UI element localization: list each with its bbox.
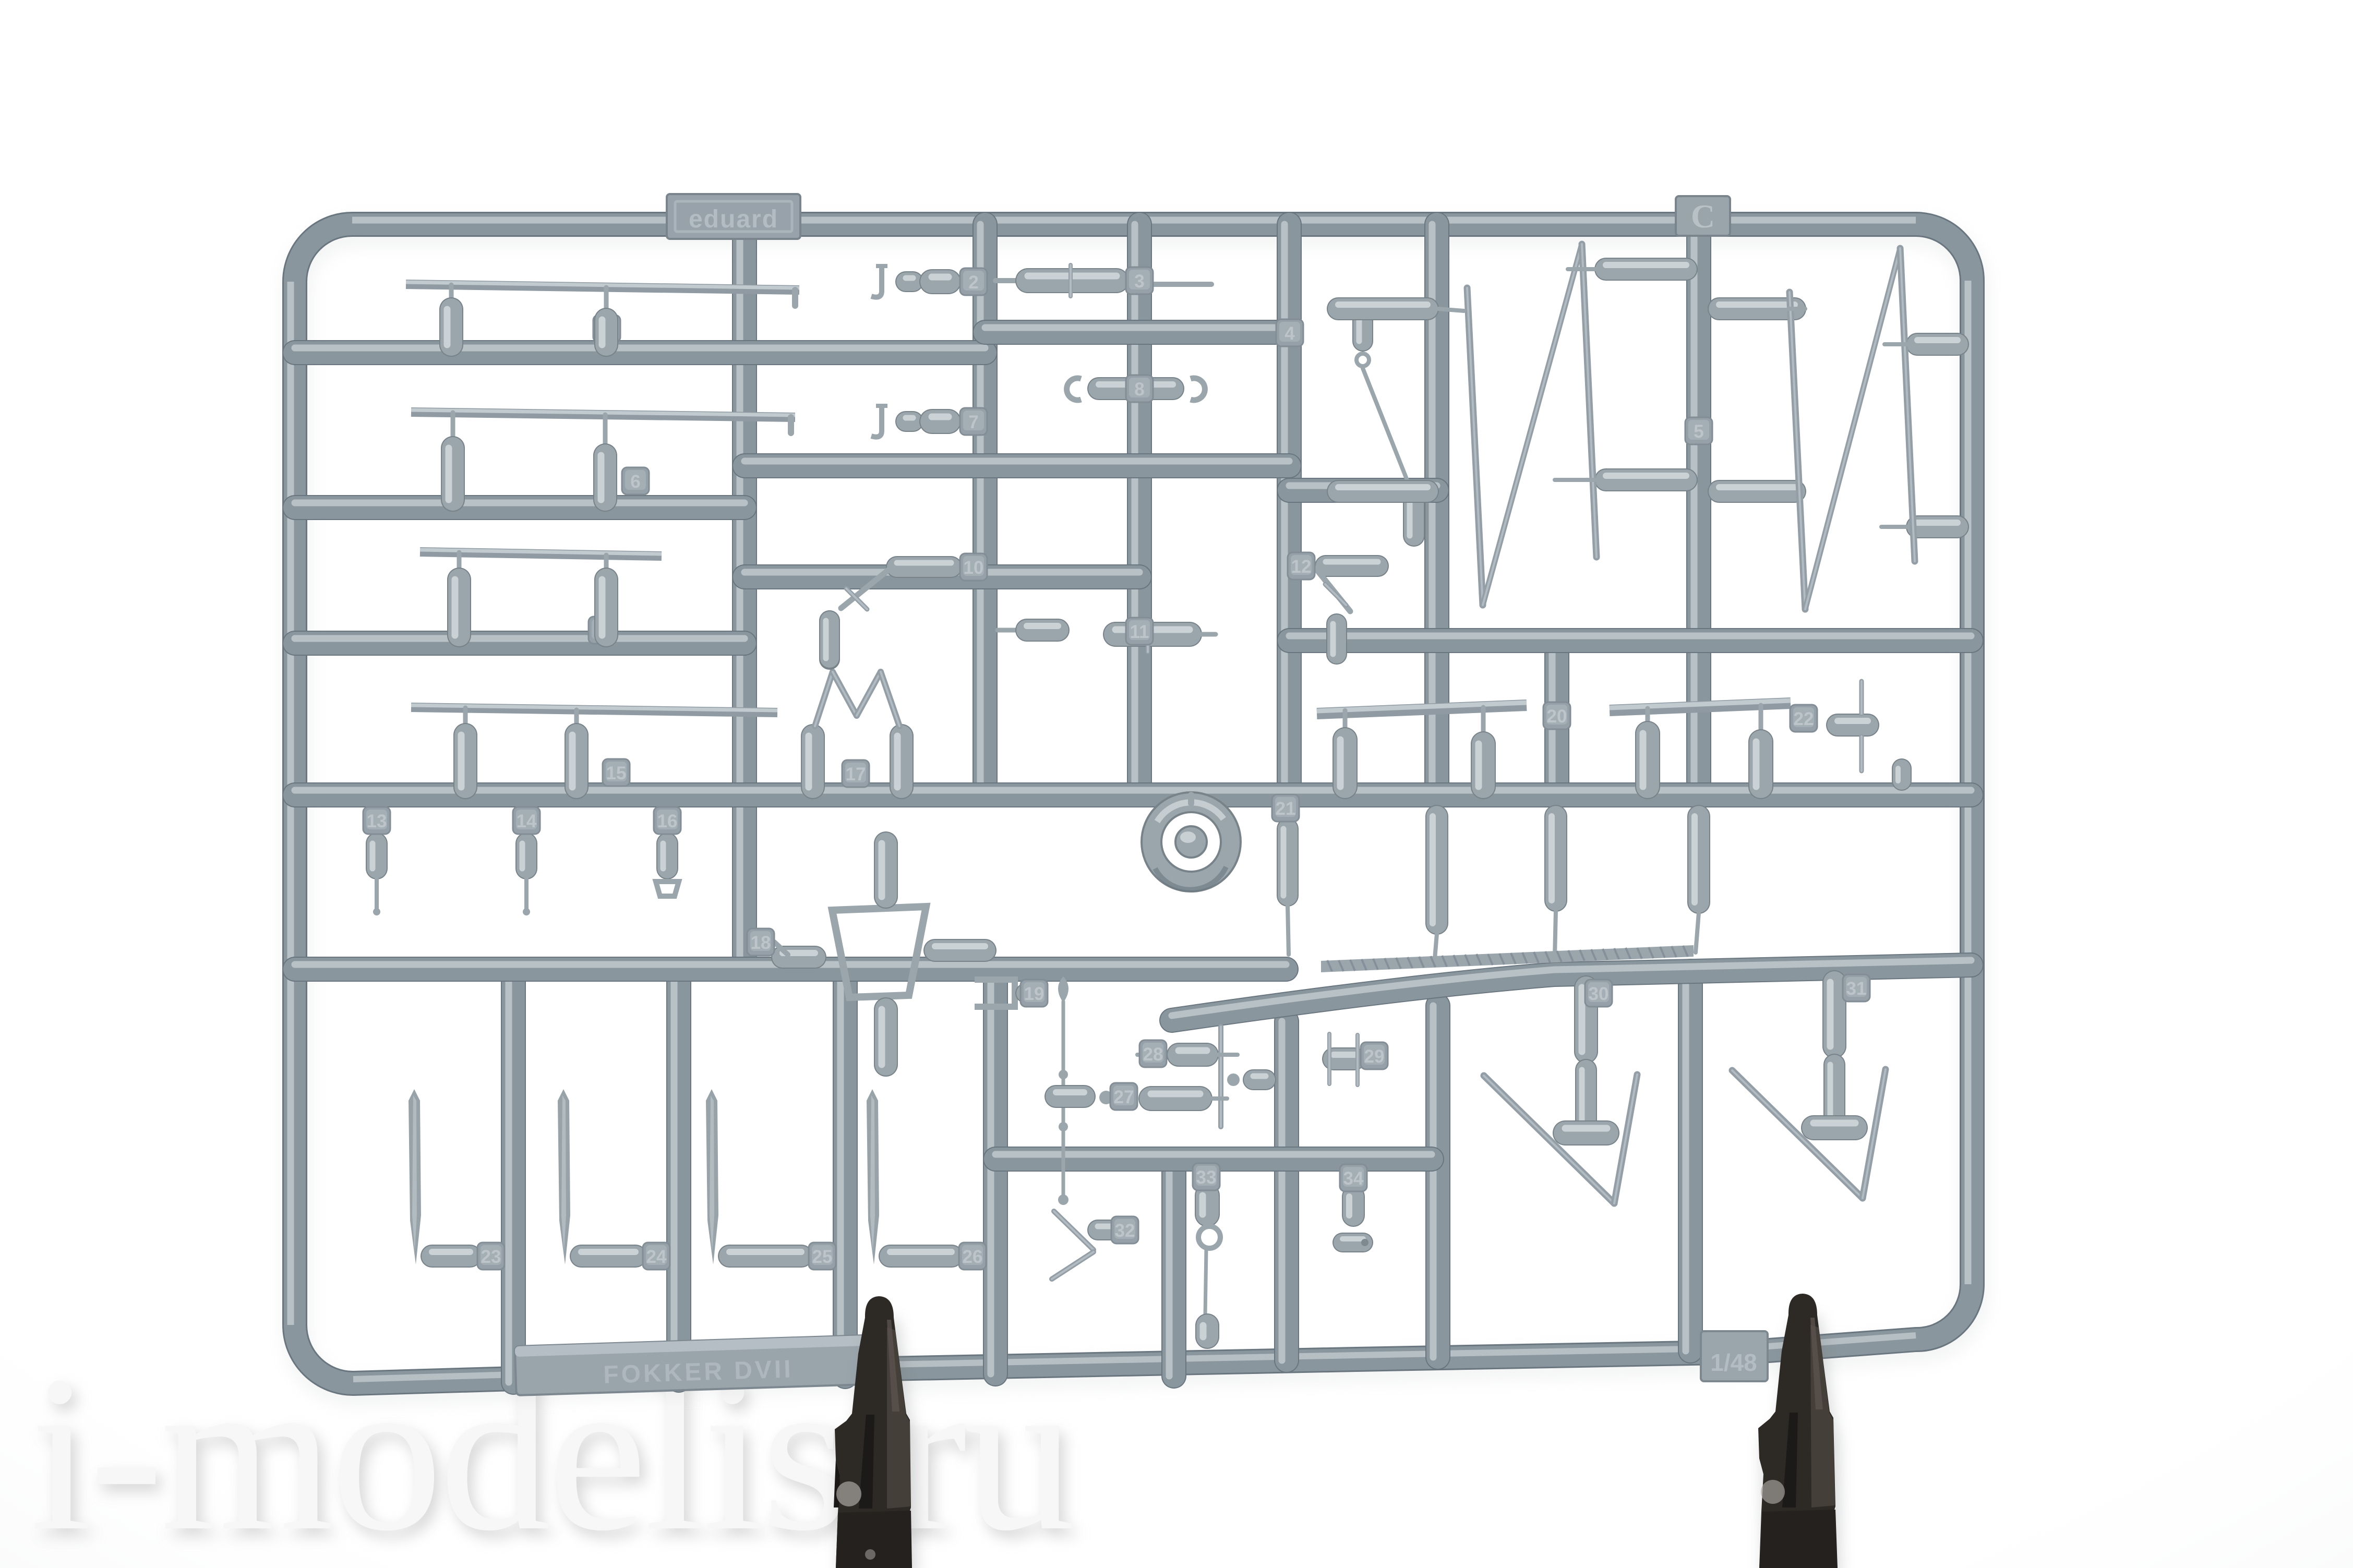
svg-text:5: 5	[1694, 421, 1703, 442]
svg-text:15: 15	[606, 763, 627, 783]
svg-text:33: 33	[1196, 1167, 1217, 1188]
svg-text:12: 12	[1291, 557, 1312, 577]
svg-text:27: 27	[1114, 1087, 1134, 1107]
svg-text:25: 25	[812, 1247, 833, 1267]
svg-text:29: 29	[1364, 1046, 1385, 1067]
svg-text:7: 7	[968, 412, 978, 432]
svg-text:24: 24	[646, 1247, 667, 1267]
svg-text:13: 13	[367, 811, 387, 831]
svg-text:26: 26	[963, 1247, 983, 1267]
svg-text:10: 10	[964, 558, 984, 578]
svg-text:31: 31	[1846, 979, 1867, 999]
svg-text:C: C	[1691, 198, 1715, 235]
svg-text:32: 32	[1115, 1221, 1135, 1241]
svg-text:34: 34	[1343, 1168, 1364, 1189]
svg-text:21: 21	[1276, 799, 1296, 819]
svg-text:2: 2	[968, 272, 978, 293]
svg-text:17: 17	[846, 764, 866, 785]
svg-text:eduard: eduard	[689, 206, 778, 233]
svg-text:8: 8	[1134, 379, 1144, 400]
svg-text:23: 23	[481, 1247, 501, 1267]
svg-text:4: 4	[1284, 323, 1295, 344]
svg-text:18: 18	[751, 933, 771, 953]
svg-text:30: 30	[1589, 984, 1609, 1004]
svg-text:6: 6	[630, 472, 640, 492]
svg-text:11: 11	[1130, 622, 1149, 642]
svg-text:16: 16	[657, 811, 678, 831]
svg-text:3: 3	[1134, 271, 1144, 292]
svg-text:28: 28	[1143, 1044, 1163, 1065]
svg-text:19: 19	[1024, 984, 1045, 1004]
svg-text:14: 14	[517, 811, 537, 831]
svg-text:22: 22	[1794, 709, 1814, 729]
svg-text:1/48: 1/48	[1710, 1349, 1757, 1376]
svg-text:20: 20	[1547, 706, 1567, 727]
